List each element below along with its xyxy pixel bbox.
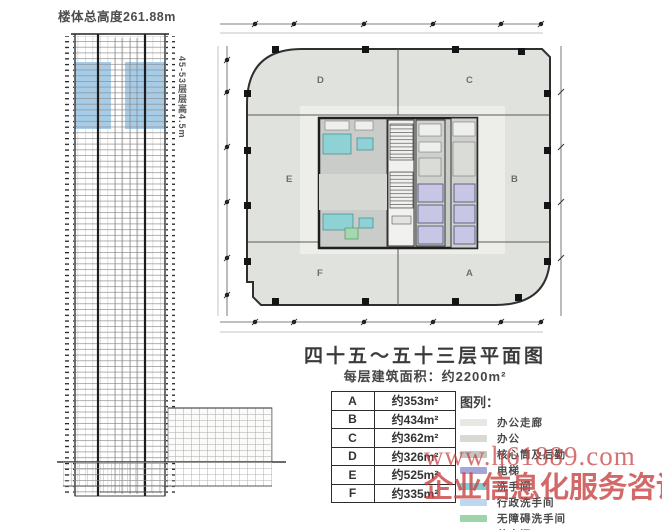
elevator-cab: [418, 184, 443, 202]
floor-plan-drawing: [205, 6, 585, 342]
table-row: D 约326m²: [332, 447, 456, 466]
table-row: A 约353m²: [332, 392, 456, 411]
table-row: C 约362m²: [332, 429, 456, 448]
elevator-cab: [454, 226, 475, 244]
zone-cell: C: [332, 429, 375, 448]
page-title: 四十五～五十三层平面图: [288, 341, 562, 368]
basement-levels: [63, 462, 272, 486]
restroom-area: [323, 134, 351, 154]
highlight-floors-label: 45-53层层高4.5m: [176, 56, 189, 139]
legend-item: 办公走廊: [460, 418, 660, 426]
area-cell: 约362m²: [375, 429, 456, 448]
legend-label: 电梯: [497, 463, 520, 478]
area-cell: 约525m²: [375, 466, 456, 485]
zone-label-b: B: [511, 174, 518, 185]
legend-label: 办公: [497, 431, 520, 446]
legend-header: 图列：: [460, 392, 660, 411]
elevator-cab: [418, 205, 443, 223]
legend-swatch-core: [460, 451, 487, 458]
elevator-cab: [454, 205, 475, 223]
legend-label: 核心筒及后勤: [497, 447, 566, 462]
area-cell: 约434m²: [375, 410, 456, 429]
legend-swatch-exec-restroom: [460, 499, 487, 506]
legend-label: 无障碍洗手间: [497, 511, 566, 526]
legend-item: 无障碍洗手间: [460, 514, 660, 522]
zone-cell: A: [332, 392, 375, 411]
area-cell: 约335m²: [375, 484, 456, 503]
table-row: F 约335m²: [332, 484, 456, 503]
zone-label-d: D: [317, 75, 324, 86]
zone-cell: E: [332, 466, 375, 485]
legend-item: 核心筒及后勤: [460, 450, 660, 458]
legend-swatch-accessible-restroom: [460, 515, 487, 522]
table-row: E 约525m²: [332, 466, 456, 485]
legend-label: 办公走廊: [497, 415, 543, 430]
elevator-cab: [454, 184, 475, 202]
zone-label-c: C: [466, 75, 473, 86]
zone-cell: B: [332, 410, 375, 429]
legend-item: 电梯: [460, 466, 660, 474]
zone-area-table: A 约353m² B 约434m² C 约362m² D 约326m² E 约5…: [331, 391, 456, 503]
legend-swatch-restroom: [460, 483, 487, 490]
zone-cell: D: [332, 447, 375, 466]
zone-label-a: A: [466, 268, 473, 279]
table-row: B 约434m²: [332, 410, 456, 429]
area-cell: 约353m²: [375, 392, 456, 411]
restroom-area: [359, 218, 373, 228]
stairs: [390, 172, 413, 208]
restroom-area: [323, 214, 353, 230]
legend-item: 行政洗手间: [460, 498, 660, 506]
legend-item: 洗手间: [460, 482, 660, 490]
zone-label-e: E: [286, 174, 292, 185]
zone-label-f: F: [317, 268, 323, 279]
legend-item: 办公: [460, 434, 660, 442]
zone-cell: F: [332, 484, 375, 503]
legend: 图列： 办公走廊 办公 核心筒及后勤 电梯 洗手间 行政洗手间 无障碍洗手间 茶…: [460, 392, 660, 530]
area-cell: 约326m²: [375, 447, 456, 466]
accessible-restroom-area: [345, 228, 358, 239]
building-total-height-label: 楼体总高度261.88m: [58, 6, 176, 25]
page: 楼体总高度261.88m: [0, 0, 662, 530]
page-subtitle: 每层建筑面积：约2200m²: [288, 366, 562, 385]
service-room: [319, 174, 387, 210]
floor-ticks-left: [65, 36, 74, 494]
legend-swatch-corridor: [460, 419, 487, 426]
restroom-area: [357, 138, 373, 150]
legend-label: 洗手间: [497, 479, 532, 494]
legend-swatch-office: [460, 435, 487, 442]
legend-swatch-elevator: [460, 467, 487, 474]
legend-label: 行政洗手间: [497, 495, 555, 510]
stairs: [390, 124, 413, 160]
legend-label: 茶水间: [497, 527, 532, 530]
elevator-cab: [418, 226, 443, 244]
